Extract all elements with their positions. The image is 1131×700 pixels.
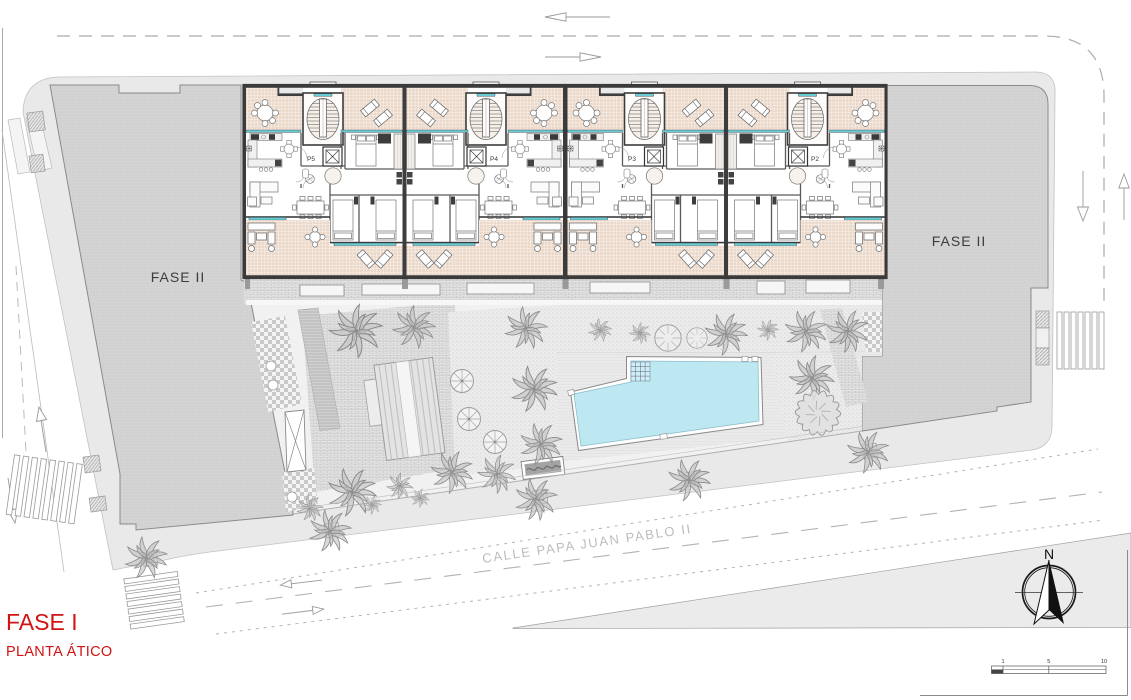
svg-text:5: 5 [1047,659,1050,665]
svg-text:P2: P2 [811,156,819,163]
svg-text:FASE I: FASE I [6,609,78,635]
svg-text:FASE II: FASE II [932,233,986,249]
svg-text:N: N [1044,546,1054,562]
svg-text:1: 1 [1001,659,1004,665]
svg-text:P3: P3 [628,156,636,163]
svg-text:PLANTA ÁTICO: PLANTA ÁTICO [6,643,112,660]
svg-text:P4: P4 [490,156,498,163]
svg-text:10: 10 [1101,659,1107,665]
svg-text:FASE II: FASE II [151,269,205,285]
svg-text:P5: P5 [307,156,315,163]
